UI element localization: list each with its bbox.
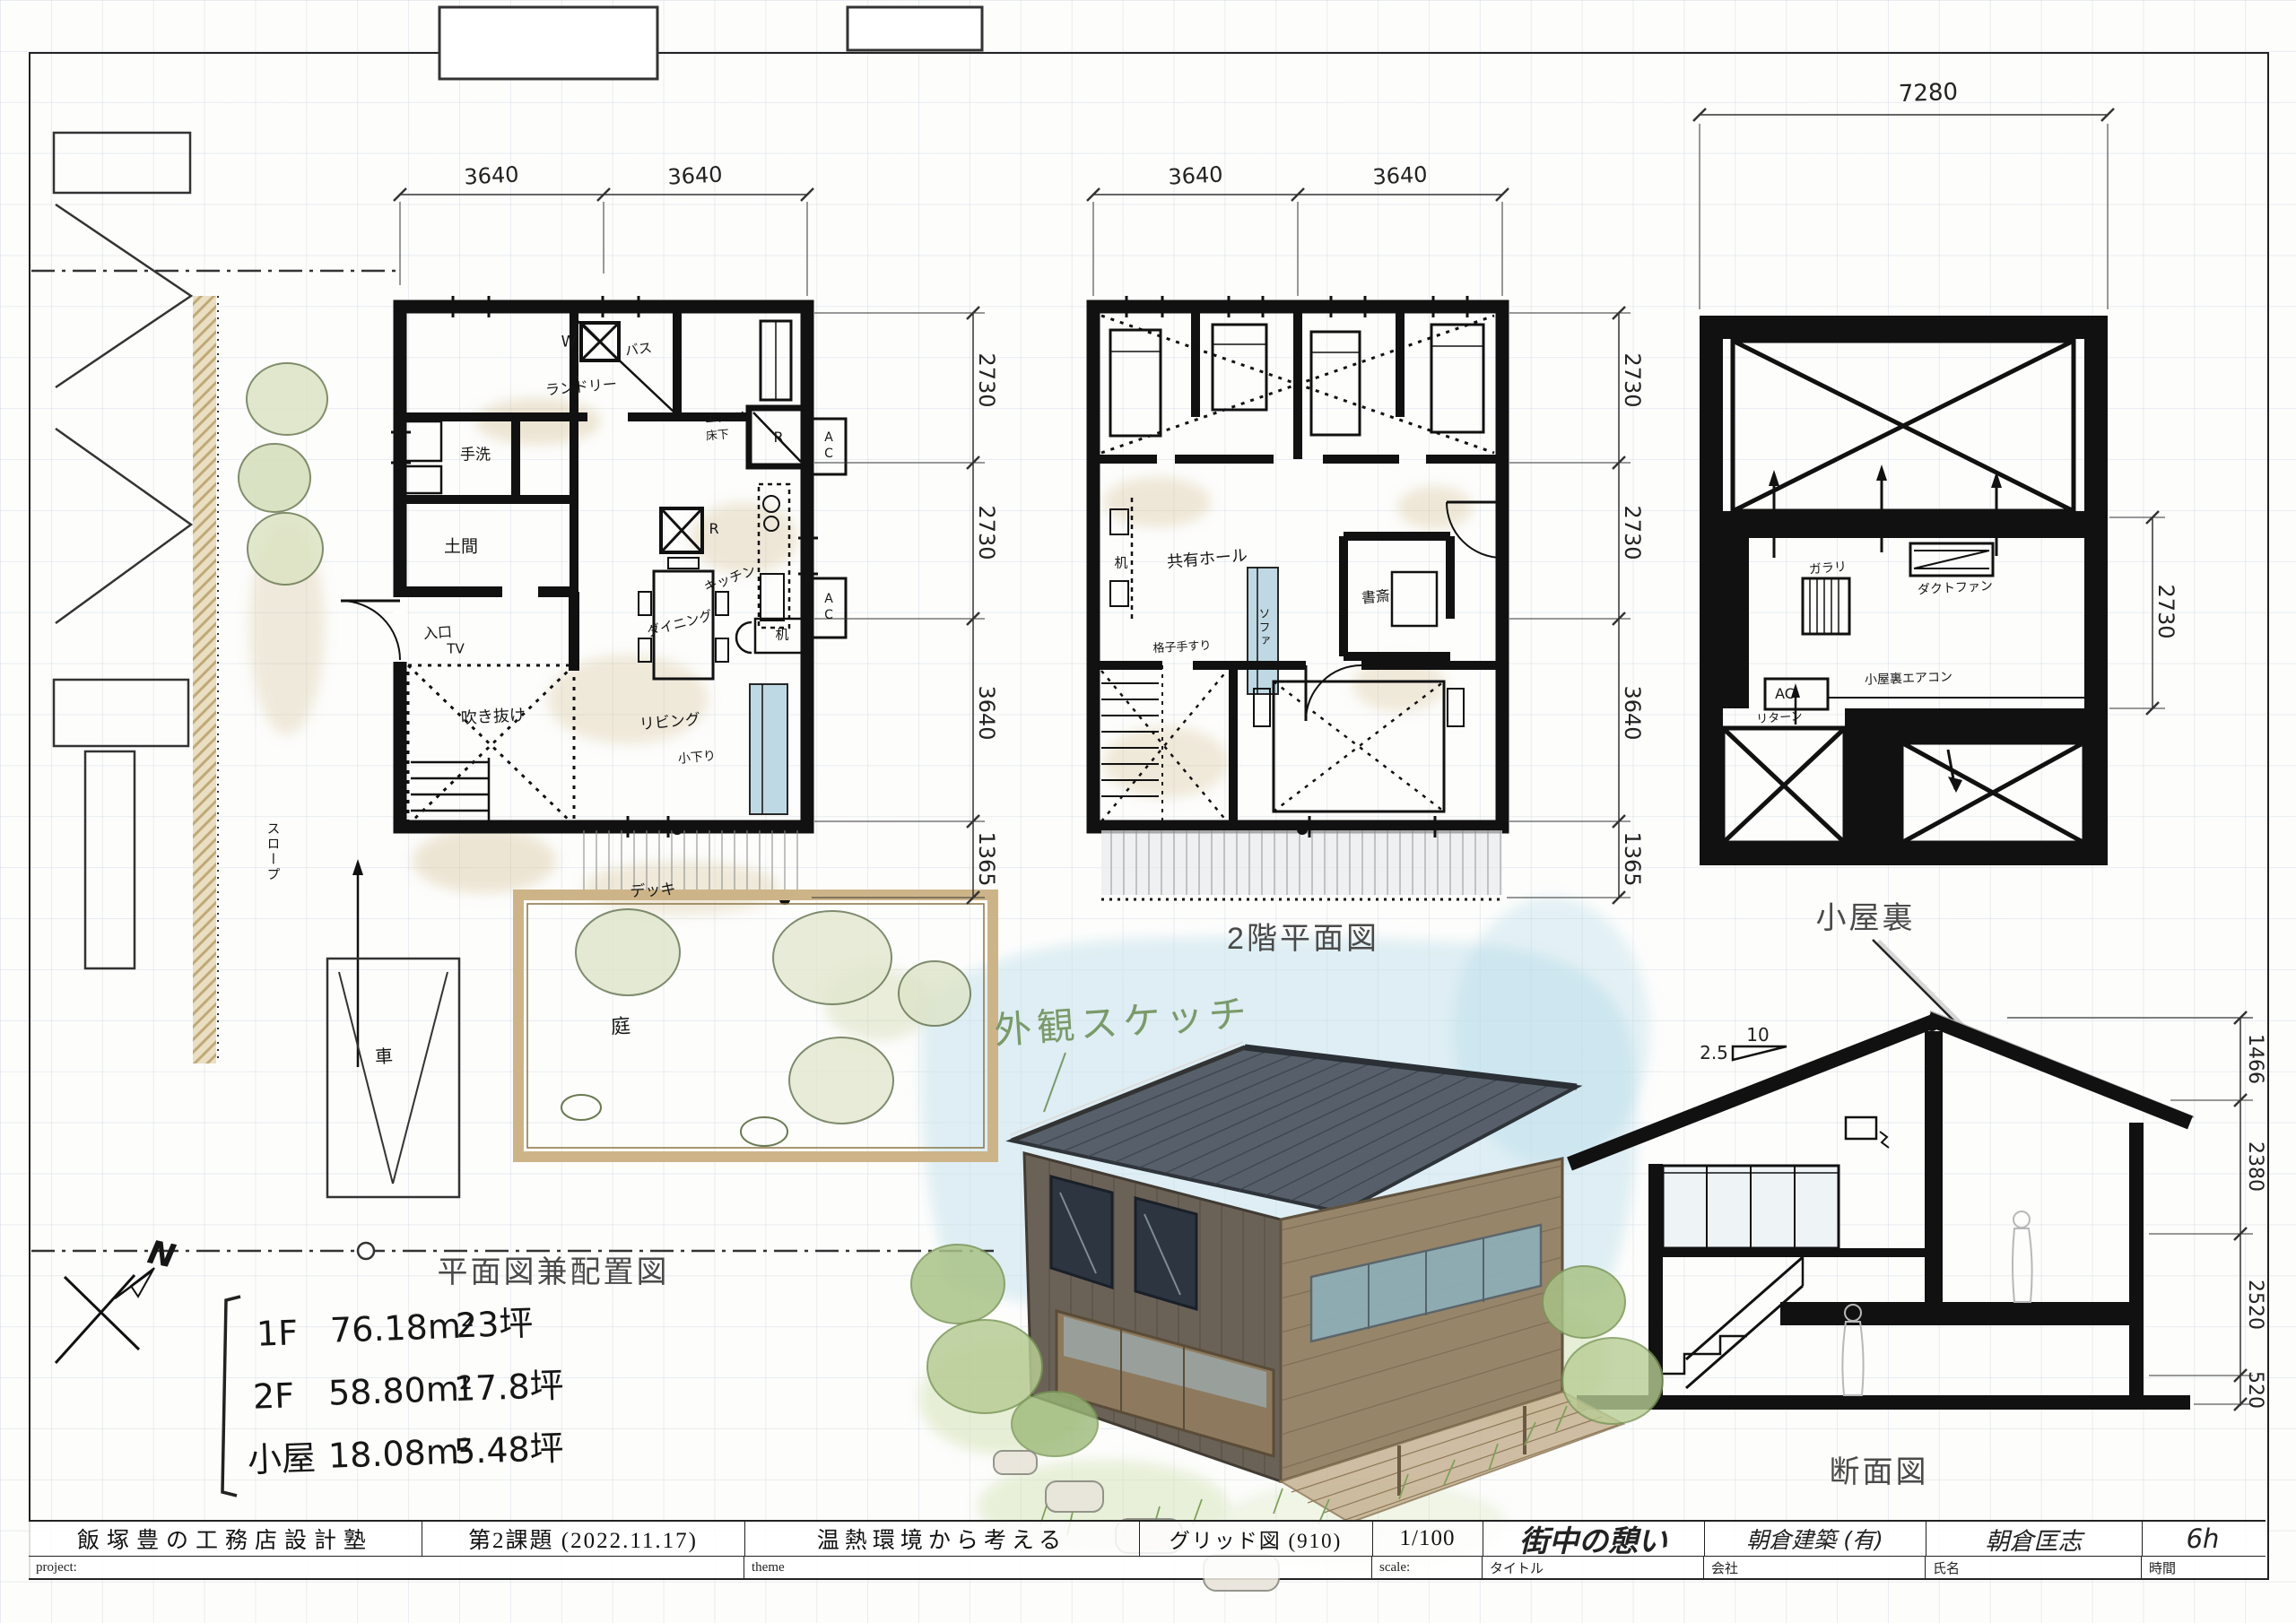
washer-label: W	[561, 335, 577, 351]
roof-slope-rise: 2.5	[1700, 1044, 1728, 1062]
area-row-tsubo: 23坪	[455, 1306, 534, 1343]
room-label-bath: バス	[624, 341, 653, 358]
desk-label: 机	[1114, 557, 1127, 570]
company-label-cell: 会社	[1704, 1557, 1926, 1579]
grid-cell: グリッド図 (910)	[1139, 1522, 1373, 1556]
title-block-row1: 飯塚豊の工務店設計塾 第2課題 (2022.11.17) 温熱環境から考える グ…	[29, 1522, 2266, 1556]
return-label: リターン	[1756, 711, 1803, 726]
dim-label: 2730	[1622, 505, 1643, 560]
assignment-cell: 第2課題 (2022.11.17)	[422, 1522, 745, 1556]
title-label-cell: タイトル	[1483, 1557, 1704, 1579]
school-name: 飯塚豊の工務店設計塾	[77, 1523, 373, 1555]
assignment-text: 第2課題 (2022.11.17)	[468, 1523, 698, 1555]
area-row-floor: 小屋	[247, 1441, 316, 1478]
north-arrow	[56, 1268, 154, 1363]
desk-label: 机	[775, 629, 788, 642]
title-block: 飯塚豊の工務店設計塾 第2課題 (2022.11.17) 温熱環境から考える グ…	[29, 1520, 2266, 1578]
project-label: project:	[36, 1560, 77, 1575]
garden-label: 庭	[610, 1017, 631, 1037]
ac-unit-label: AC	[822, 592, 835, 624]
theme-label-cell: theme	[744, 1557, 1372, 1579]
title-value-cell: 街中の憩い	[1483, 1522, 1705, 1556]
dim-label: 2730	[976, 505, 997, 560]
section-linework	[1570, 1011, 2194, 1410]
plan1-title: 平面図兼配置図	[438, 1257, 670, 1288]
dim-label: 7280	[1898, 81, 1958, 106]
dim-label: 3640	[1168, 163, 1223, 187]
room-label-doma: 土間	[444, 539, 478, 556]
underfloor-label: 床下	[705, 429, 729, 442]
name-value: 朝倉匡志	[1986, 1522, 2083, 1556]
car-label: 車	[374, 1046, 393, 1065]
attic-aircon-label: 小屋裏エアコン	[1865, 671, 1952, 686]
area-row-tsubo: 5.48坪	[453, 1431, 564, 1469]
dim-label: 2730	[976, 352, 997, 407]
plan2-title: 2階平面図	[1227, 924, 1379, 954]
dim-label: 1365	[1622, 831, 1643, 886]
dim-label: 2730	[2155, 584, 2177, 638]
room-label-entrance: 入口	[422, 625, 452, 641]
dim-label: 3640	[1622, 685, 1643, 740]
drawing-sheet: 平面図兼配置図 2階平面図 小屋裏 断面図 外観スケッチ N 1F 76.18m…	[0, 0, 2296, 1623]
duct-fan-label: ダクトファン	[1918, 580, 1994, 596]
title-label: タイトル	[1490, 1558, 1544, 1577]
title-value: 街中の憩い	[1519, 1522, 1667, 1556]
fridge-r-label: R	[709, 522, 718, 536]
company-cell: 朝倉建築 (有)	[1704, 1522, 1926, 1556]
name-label: 氏名	[1933, 1558, 1960, 1577]
louver-label: ガラリ	[1808, 560, 1847, 577]
dim-label: 2380	[2245, 1141, 2265, 1192]
grid-text: グリッド図 (910)	[1170, 1523, 1343, 1554]
section-title: 断面図	[1830, 1457, 1929, 1488]
theme-label: theme	[752, 1560, 785, 1575]
area-row-floor: 2F	[252, 1378, 294, 1414]
theme-text: 温熱環境から考える	[817, 1523, 1066, 1555]
step-label: 小下り	[677, 750, 716, 766]
sofa-label: ソファ	[1257, 608, 1269, 648]
room-label-handwash: 手洗	[460, 448, 491, 464]
title-block-row2: project: theme scale: タイトル 会社 氏名 時間	[29, 1556, 2266, 1579]
slope-label: スロープ	[266, 821, 280, 882]
theme-cell: 温熱環境から考える	[744, 1522, 1140, 1556]
scale-label: scale:	[1379, 1560, 1410, 1575]
company-label: 会社	[1711, 1558, 1738, 1577]
time-cell: 6h	[2142, 1522, 2264, 1556]
school-cell: 飯塚豊の工務店設計塾	[29, 1522, 422, 1556]
dim-label: 520	[2245, 1371, 2265, 1409]
area-summary-bracket	[222, 1297, 240, 1496]
attic-title: 小屋裏	[1816, 903, 1916, 933]
name-label-cell: 氏名	[1926, 1557, 2142, 1579]
scale-cell: 1/100	[1372, 1522, 1483, 1556]
time-label: 時間	[2149, 1558, 2176, 1577]
closet-r-label: R	[773, 430, 783, 445]
room-label-void: 吹き抜け	[461, 707, 526, 727]
roof-slope-run: 10	[1746, 1026, 1769, 1044]
area-row-tsubo: 17.8坪	[453, 1368, 564, 1406]
scale-label-cell: scale:	[1372, 1557, 1483, 1579]
project-label-cell: project:	[29, 1557, 744, 1579]
site-plan-dimensions	[394, 188, 985, 904]
dim-label: 3640	[464, 163, 519, 187]
ac-unit-label: AC	[822, 430, 835, 463]
scale-value: 1/100	[1400, 1526, 1456, 1551]
dim-label: 3640	[1372, 163, 1428, 187]
floor-plan-2f-linework	[1093, 296, 1502, 899]
area-row-area: 76.18m²	[329, 1308, 474, 1348]
attic-ac-label: AC	[1775, 687, 1795, 701]
tv-label: TV	[447, 643, 464, 656]
dim-label: 2520	[2245, 1280, 2265, 1330]
dim-label: 3640	[667, 163, 723, 187]
area-row-area: 58.80m²	[327, 1371, 473, 1410]
site-plan-linework	[327, 296, 993, 1197]
dim-label: 2730	[1622, 352, 1643, 407]
name-cell: 朝倉匡志	[1926, 1522, 2143, 1556]
room-label-study: 書斎	[1361, 589, 1390, 606]
dim-label: 1466	[2245, 1034, 2265, 1084]
handrail-label: 格子手すり	[1152, 640, 1212, 655]
deck-label: デッキ	[630, 882, 676, 900]
area-row-floor: 1F	[256, 1315, 298, 1351]
time-label-cell: 時間	[2142, 1557, 2264, 1579]
time-value: 6h	[2187, 1523, 2220, 1554]
dim-label: 1365	[976, 831, 997, 886]
company-value: 朝倉建築 (有)	[1746, 1523, 1883, 1555]
attic-plan-linework	[1700, 327, 2108, 865]
dim-label: 3640	[976, 685, 997, 740]
area-row-area: 18.08m²	[327, 1434, 473, 1473]
